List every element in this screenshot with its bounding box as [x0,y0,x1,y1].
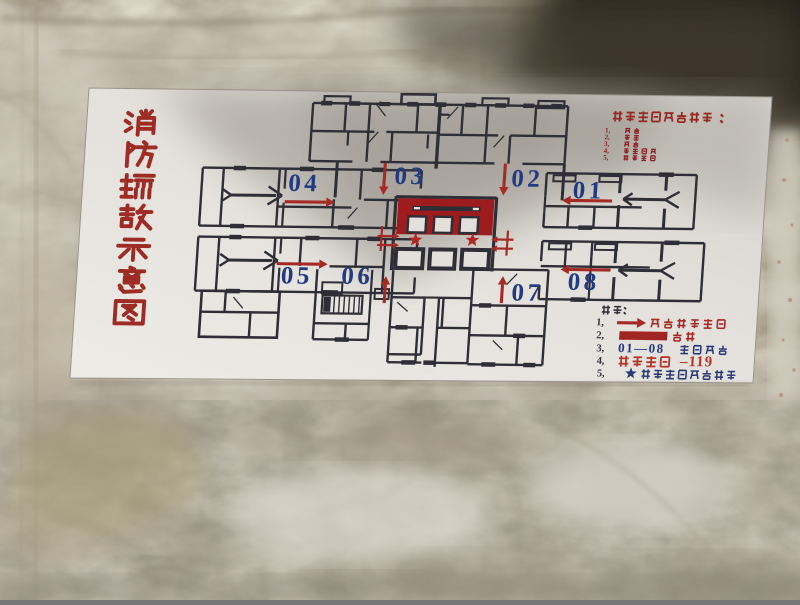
svg-text:01: 01 [572,177,606,204]
svg-text:08: 08 [567,269,601,296]
svg-text:1,: 1, [596,317,605,328]
svg-text:5,: 5, [603,154,609,162]
svg-text:06: 06 [341,263,375,290]
svg-text:07: 07 [511,280,545,307]
svg-text:04: 04 [288,170,322,197]
svg-text:4,: 4, [596,356,605,367]
svg-text:3,: 3, [596,343,605,354]
svg-text:2,: 2, [596,330,605,341]
svg-text:02: 02 [511,165,545,192]
svg-text:03: 03 [394,163,428,190]
svg-text:05: 05 [280,262,314,289]
svg-text:5,: 5, [596,368,605,379]
svg-text:–119: –119 [678,354,713,370]
svg-text:01—08: 01—08 [618,340,665,356]
